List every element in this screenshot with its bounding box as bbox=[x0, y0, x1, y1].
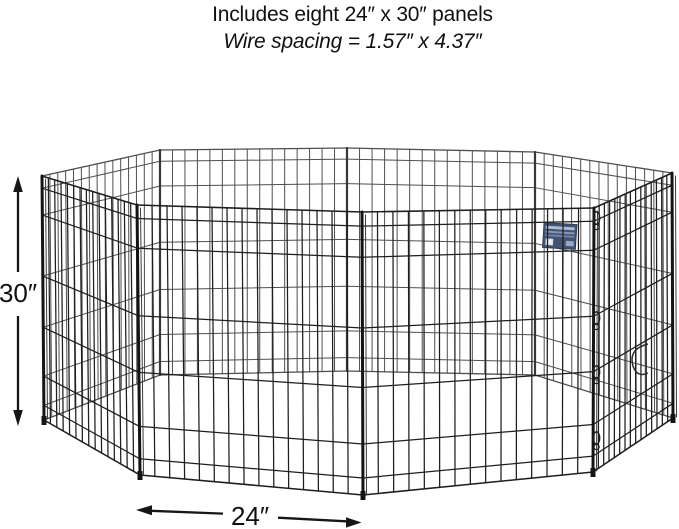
pen-illustration: 30″ 24″ bbox=[0, 0, 679, 529]
gate-latch-clips bbox=[593, 212, 648, 450]
height-dimension-arrow: 30″ bbox=[0, 176, 37, 426]
width-dimension-label: 24″ bbox=[231, 501, 269, 529]
width-dimension-arrow: 24″ bbox=[136, 501, 362, 529]
exercise-pen-product-diagram: Includes eight 24″ x 30″ panels Wire spa… bbox=[0, 0, 679, 529]
height-dimension-label: 30″ bbox=[0, 278, 37, 308]
